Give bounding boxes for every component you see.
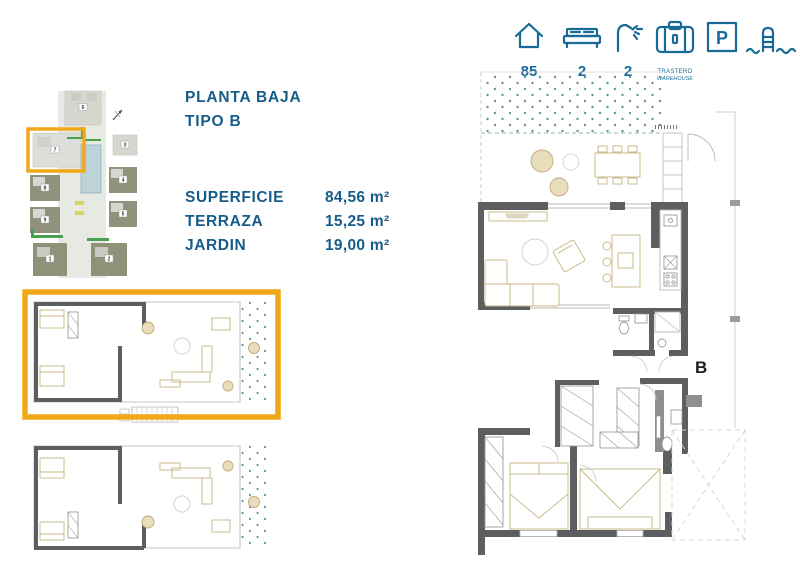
- building-number: 6: [82, 105, 85, 111]
- site-plan-map: 6 7 3 4 5 8 9 1 2: [25, 83, 140, 283]
- house-icon: [511, 20, 547, 50]
- tree: [550, 178, 568, 196]
- area-row-superficie: SUPERFICIE84,56 m²: [185, 186, 435, 210]
- sofa: [485, 260, 559, 306]
- furniture: [40, 458, 260, 540]
- area-row-terraza: TERRAZA15,25 m²: [185, 210, 435, 234]
- kitchen-cabinets: [663, 133, 682, 207]
- info-block: PLANTA BAJA TIPO B SUPERFICIE84,56 m² TE…: [185, 86, 435, 134]
- parking-letter: P: [716, 28, 728, 48]
- building-number: 5: [122, 212, 125, 218]
- main-floorplan: B: [477, 50, 749, 562]
- pool-icon: [745, 24, 797, 56]
- area-value: 15,25 m²: [325, 213, 389, 230]
- plot-boundary: [715, 112, 740, 428]
- living-room: [485, 212, 585, 306]
- area-value: 19,00 m²: [325, 237, 389, 254]
- building-number: 4: [122, 178, 125, 184]
- building-number: 8: [44, 186, 47, 192]
- unit-label: B: [695, 358, 707, 377]
- bedroom-1: [485, 437, 568, 529]
- armchair: [553, 240, 586, 273]
- building-number: 2: [108, 257, 111, 263]
- area-label: SUPERFICIE: [185, 186, 325, 210]
- area-row-jardin: JARDIN19,00 m²: [185, 234, 435, 258]
- page-subtitle: TIPO B: [185, 110, 435, 134]
- area-label: JARDIN: [185, 234, 325, 258]
- dimension-marks: [655, 125, 677, 129]
- floorplan-sheet: 85 2 2: [0, 0, 800, 566]
- wardrobe: [485, 437, 503, 527]
- rug: [522, 239, 548, 265]
- terrace: [531, 146, 640, 196]
- parking-icon: P: [705, 20, 739, 54]
- page-title: PLANTA BAJA: [185, 86, 435, 110]
- walls: [34, 302, 146, 402]
- outdoor-dining-table: [595, 146, 640, 184]
- overview-bottom-unit: [34, 446, 270, 550]
- building-number: 3: [124, 143, 127, 149]
- furniture: [40, 310, 260, 391]
- area-value: 84,56 m²: [325, 189, 389, 206]
- outdoor-terrace: [672, 430, 745, 540]
- building-number: 1: [49, 257, 52, 263]
- building-number: 9: [44, 218, 47, 224]
- entry-door: [688, 134, 715, 161]
- feature-pool: [743, 20, 799, 80]
- shower-icon: [611, 20, 645, 54]
- area-label: TERRAZA: [185, 210, 325, 234]
- building-number: 7: [54, 148, 57, 154]
- overview-floorplan: [22, 288, 282, 563]
- kitchen: [603, 210, 681, 290]
- bedroom-2: [580, 432, 660, 529]
- areas-table: SUPERFICIE84,56 m² TERRAZA15,25 m² JARDI…: [185, 186, 435, 258]
- wardrobe: [600, 432, 638, 448]
- tree: [531, 150, 553, 172]
- overview-top-unit: [34, 302, 270, 404]
- garden-area: [481, 72, 663, 205]
